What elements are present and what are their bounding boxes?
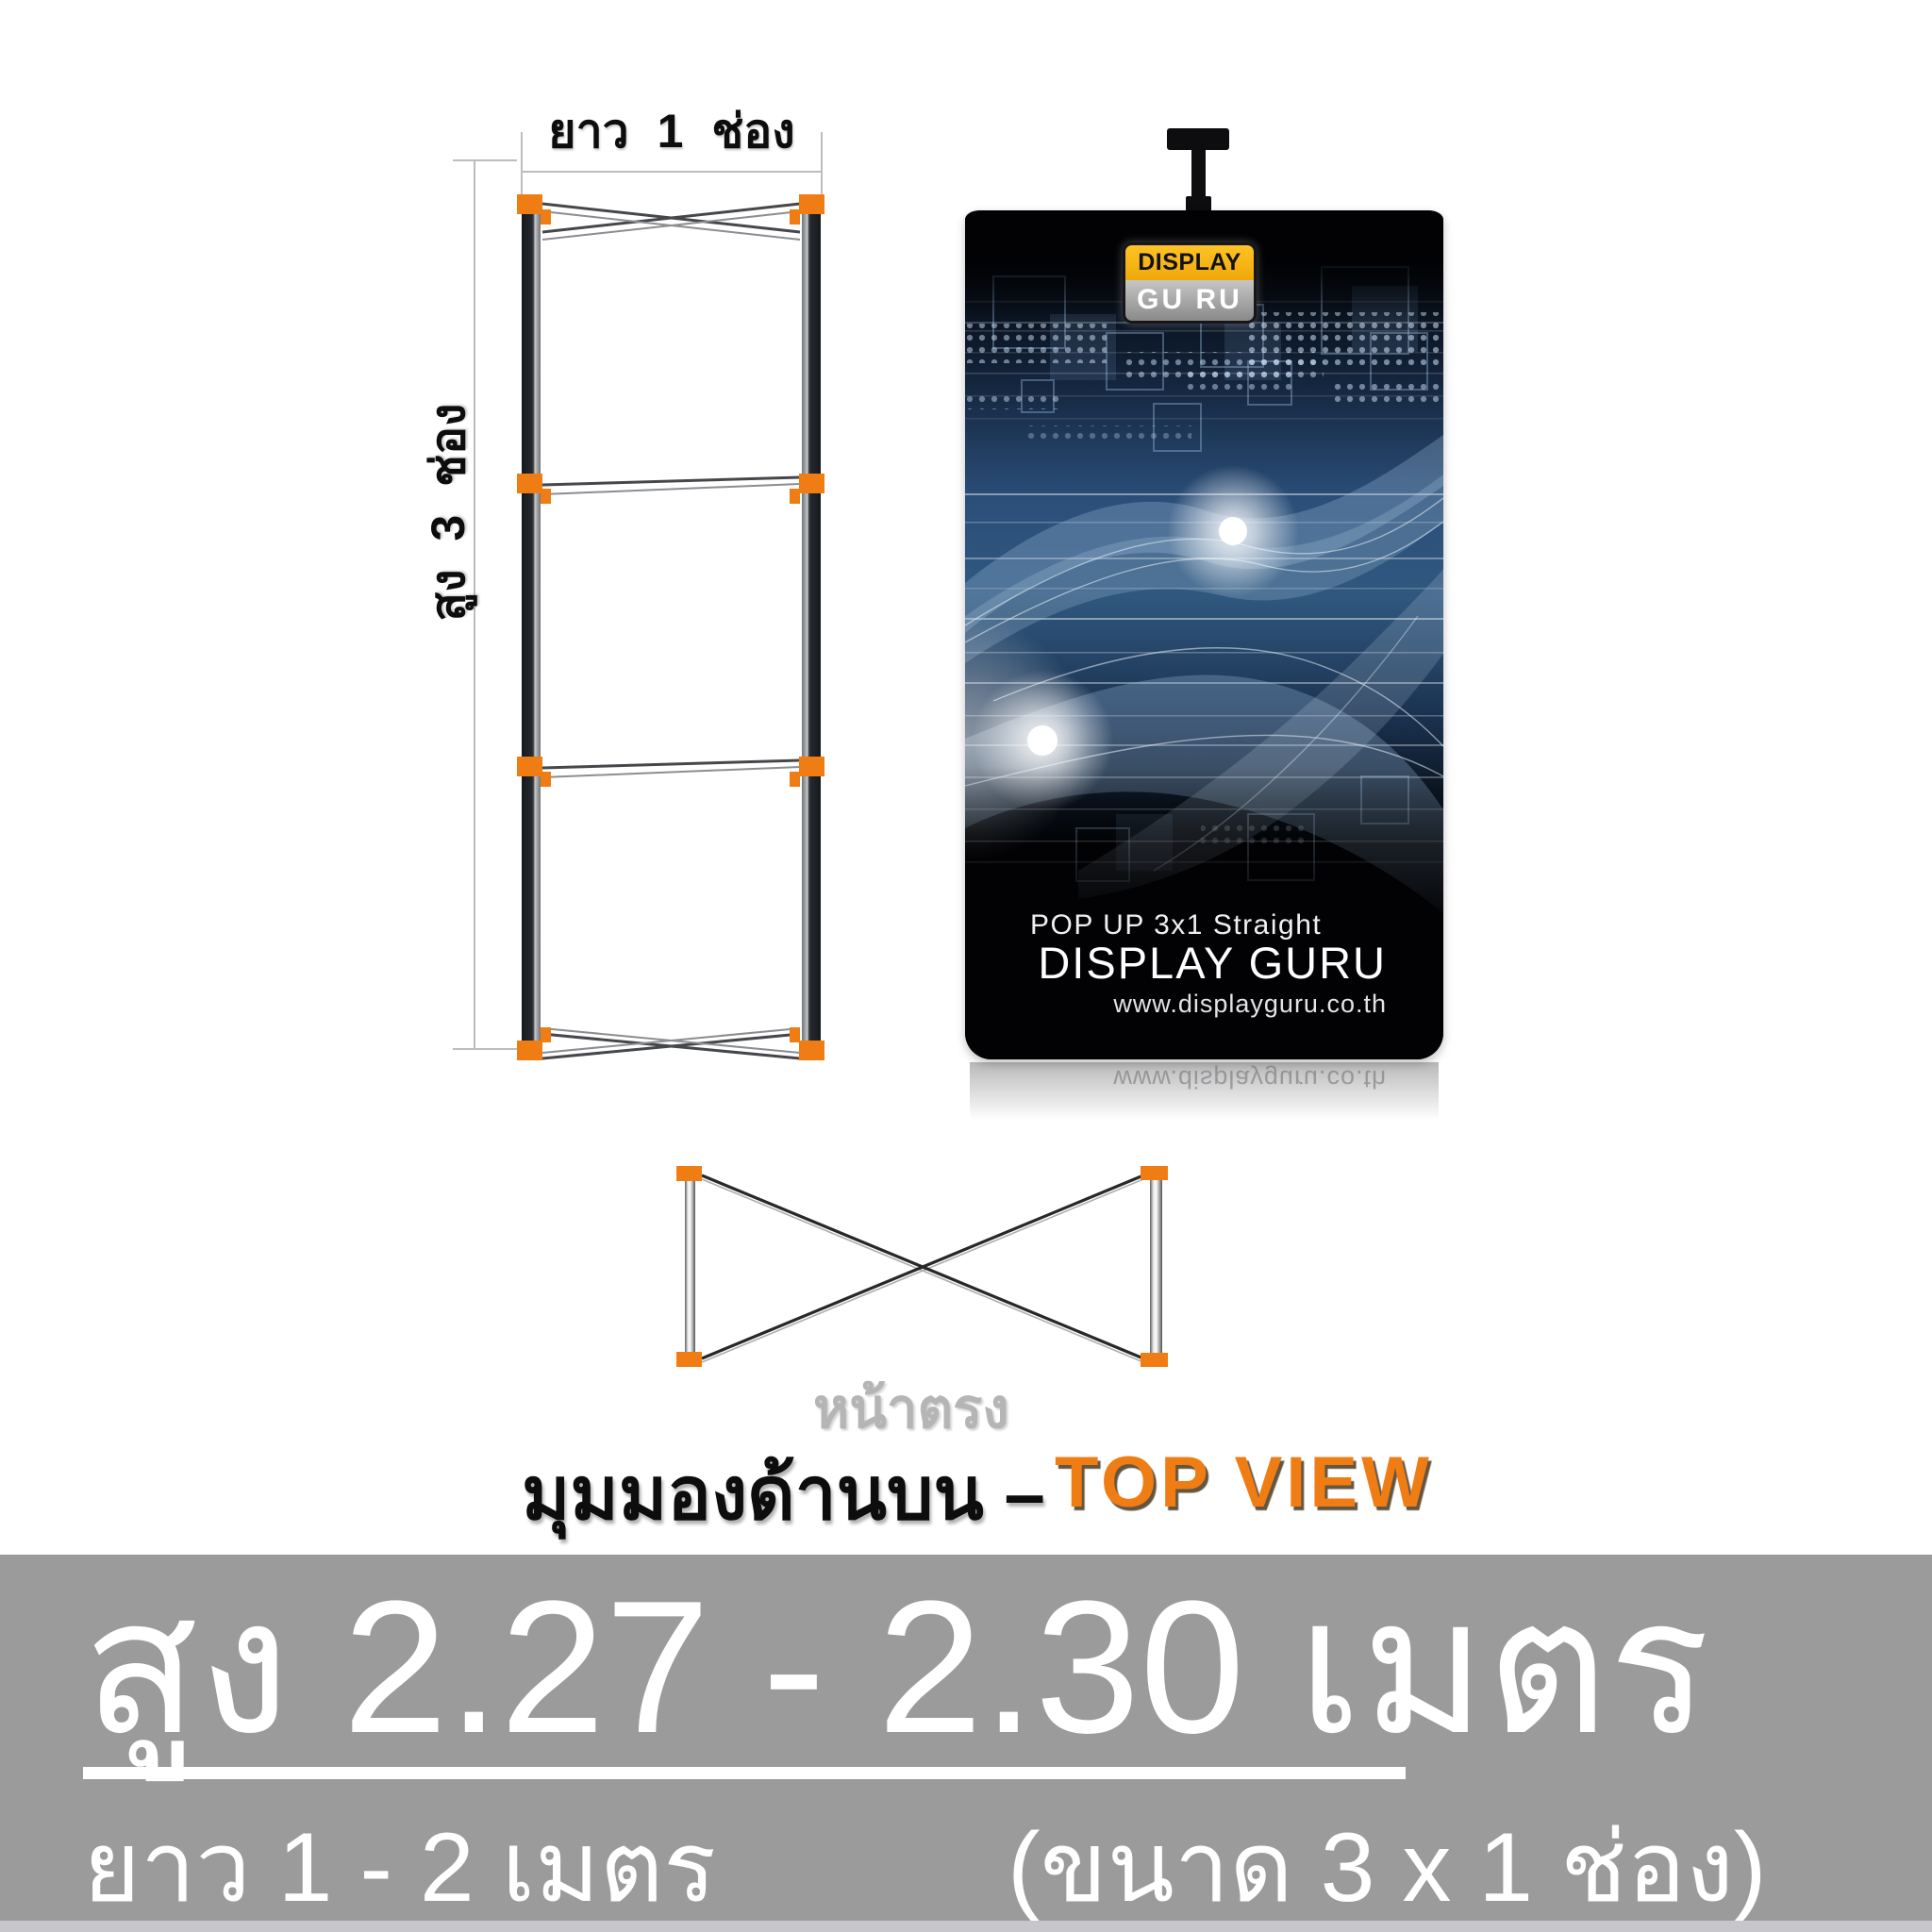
height-dimension-label: สูง 3 ช่อง [411,356,466,669]
hanger-stem-icon [1191,145,1206,202]
reflection-website-text: www.displayguru.co.th [965,1064,1387,1093]
logo-display-band: DISPLAY [1125,245,1254,280]
logo-guru-band: GU RU [1125,280,1254,321]
top-view-diagram [676,1166,1168,1367]
hanger-foot-icon [1186,196,1211,211]
product-line-text: POP UP 3x1 Straight [1030,909,1322,941]
frame-connectors [517,194,824,1060]
banner-bottom-strip [0,1921,1932,1932]
frame-wires [542,204,800,1058]
dimension-lines [453,132,822,1049]
height-spec-text: สูง 2.27 - 2.30 เมตร [83,1574,1710,1762]
frame-posts [522,196,821,1060]
brand-website-text: www.displayguru.co.th [965,990,1387,1019]
display-guru-logo: DISPLAY GU RU [1123,242,1257,324]
length-spec-text: ยาว 1 - 2 เมตร [83,1819,716,1917]
width-dimension-label: ยาว 1 ช่อง [522,94,822,169]
top-view-caption-thai: มุมมองด้านบน – [522,1435,1045,1552]
brand-block: DISPLAY GURU www.displayguru.co.th [965,940,1387,1019]
spec-underline [83,1767,1406,1779]
brand-name-text: DISPLAY GURU [965,940,1387,986]
top-view-caption-english: TOP VIEW [1055,1441,1433,1524]
product-infographic: ยาว 1 ช่อง สูง 3 ช่อง [0,0,1932,1932]
size-spec-text: (ขนาด 3 x 1 ช่อง) [1008,1819,1766,1917]
